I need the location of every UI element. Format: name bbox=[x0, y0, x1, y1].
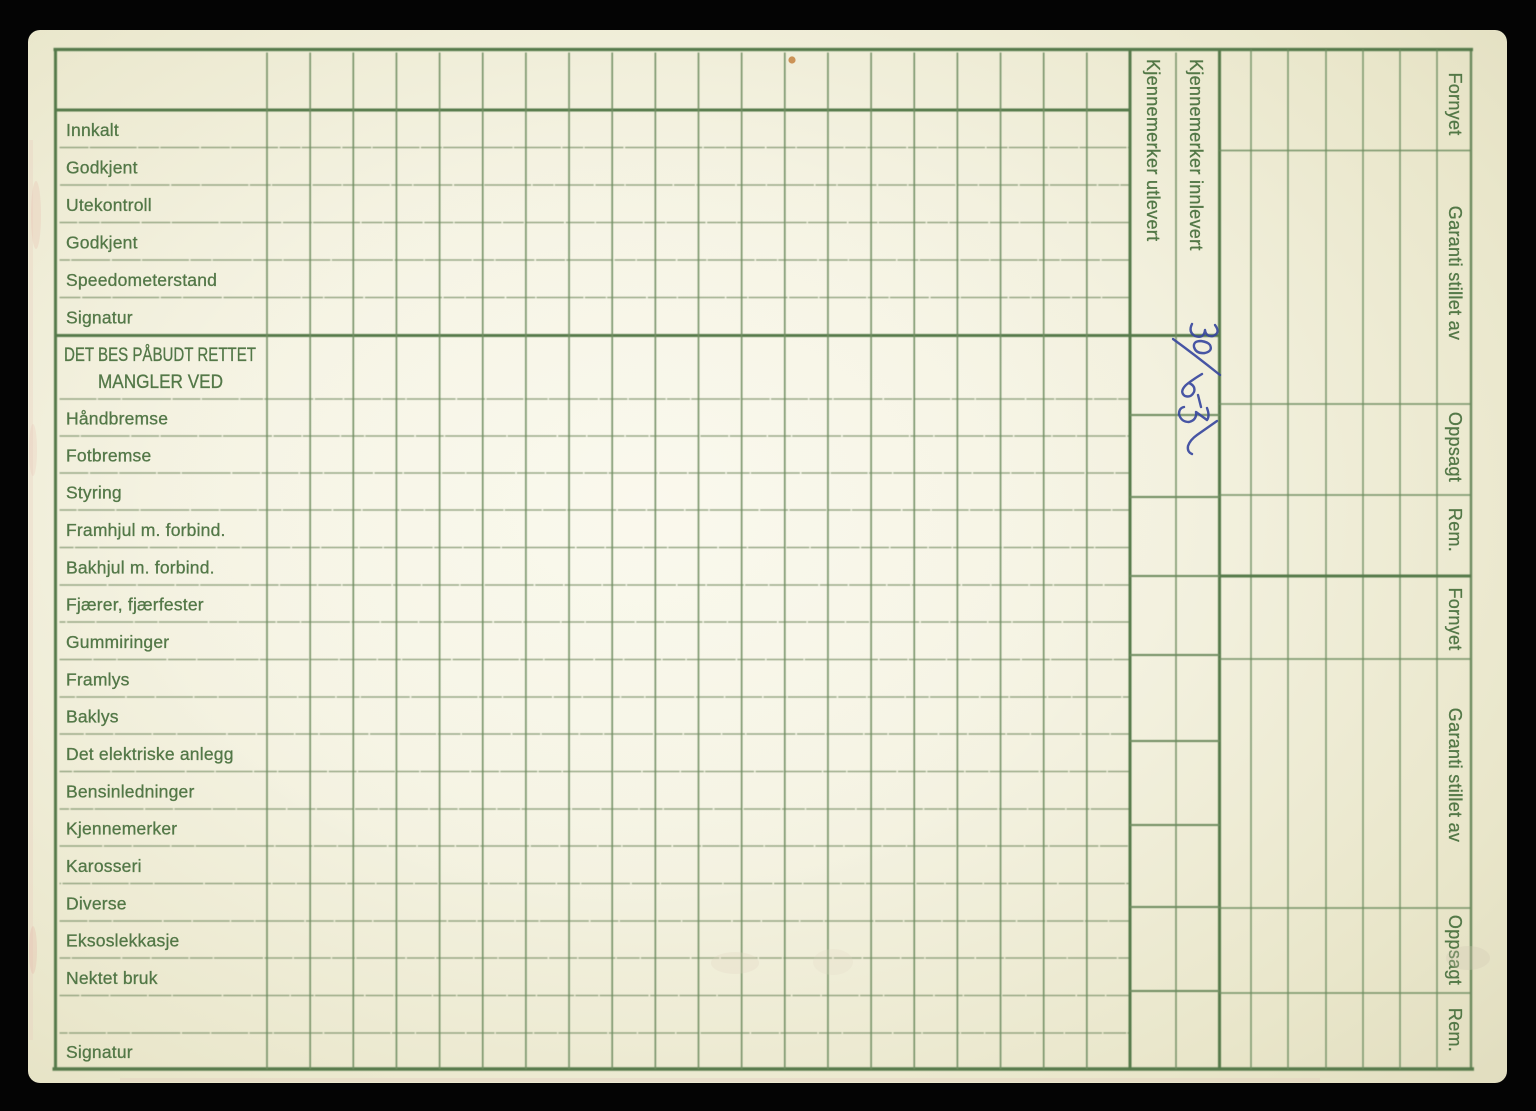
svg-text:Styring: Styring bbox=[66, 483, 122, 503]
svg-text:Garanti stillet av: Garanti stillet av bbox=[1445, 206, 1465, 340]
svg-text:Eksoslekkasje: Eksoslekkasje bbox=[66, 931, 179, 951]
svg-text:Oppsagt: Oppsagt bbox=[1445, 412, 1465, 482]
svg-text:DET BES PÅBUDT RETTET: DET BES PÅBUDT RETTET bbox=[64, 345, 256, 366]
svg-text:Bensinledninger: Bensinledninger bbox=[66, 781, 195, 801]
svg-text:Rem.: Rem. bbox=[1445, 508, 1465, 552]
svg-text:Framhjul m. forbind.: Framhjul m. forbind. bbox=[66, 520, 226, 540]
svg-text:Garanti stillet av: Garanti stillet av bbox=[1445, 708, 1465, 842]
svg-text:MANGLER VED: MANGLER VED bbox=[98, 372, 223, 393]
svg-text:Godkjent: Godkjent bbox=[66, 232, 138, 252]
svg-text:Framlys: Framlys bbox=[66, 669, 130, 689]
svg-text:Karosseri: Karosseri bbox=[66, 856, 142, 876]
svg-text:Fornyet: Fornyet bbox=[1445, 72, 1465, 135]
svg-text:Diverse: Diverse bbox=[66, 893, 127, 913]
svg-text:Gummiringer: Gummiringer bbox=[66, 632, 169, 652]
svg-text:Fornyet: Fornyet bbox=[1445, 587, 1465, 650]
svg-text:Bakhjul m. forbind.: Bakhjul m. forbind. bbox=[66, 557, 215, 577]
svg-text:Håndbremse: Håndbremse bbox=[66, 409, 168, 429]
svg-text:Fotbremse: Fotbremse bbox=[66, 446, 151, 466]
svg-text:Nektet bruk: Nektet bruk bbox=[66, 968, 158, 988]
svg-text:Innkalt: Innkalt bbox=[66, 120, 119, 140]
svg-text:Speedometerstand: Speedometerstand bbox=[66, 270, 217, 290]
svg-text:Signatur: Signatur bbox=[66, 307, 133, 327]
svg-text:Fjærer, fjærfester: Fjærer, fjærfester bbox=[66, 595, 204, 615]
svg-text:Kjennemerker: Kjennemerker bbox=[66, 819, 177, 839]
svg-text:Baklys: Baklys bbox=[66, 707, 119, 727]
svg-text:Kjennemerker utlevert: Kjennemerker utlevert bbox=[1143, 59, 1163, 241]
svg-text:Utekontroll: Utekontroll bbox=[66, 195, 152, 215]
svg-text:Kjennemerker innlevert: Kjennemerker innlevert bbox=[1186, 59, 1206, 251]
svg-text:Godkjent: Godkjent bbox=[66, 157, 138, 177]
svg-text:Signatur: Signatur bbox=[66, 1042, 133, 1062]
svg-text:Det elektriske anlegg: Det elektriske anlegg bbox=[66, 744, 234, 764]
svg-text:Rem.: Rem. bbox=[1445, 1008, 1465, 1052]
